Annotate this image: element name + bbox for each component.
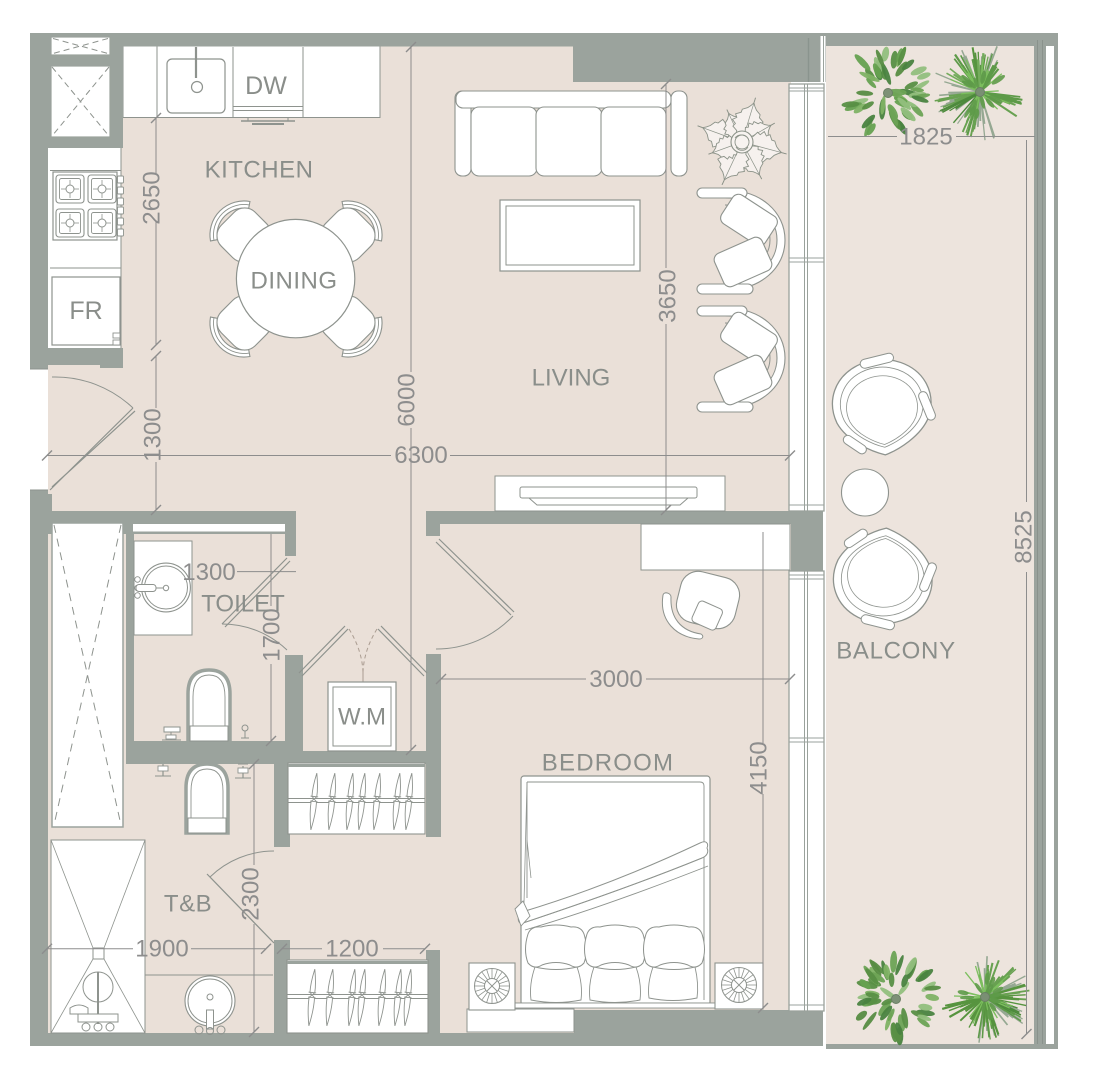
svg-text:2300: 2300: [238, 867, 265, 920]
svg-text:BALCONY: BALCONY: [836, 638, 956, 665]
svg-text:2650: 2650: [139, 171, 166, 224]
svg-text:TOILET: TOILET: [201, 591, 285, 618]
svg-text:W.M: W.M: [338, 704, 386, 731]
svg-text:BEDROOM: BEDROOM: [542, 750, 674, 777]
svg-text:LIVING: LIVING: [532, 365, 611, 392]
svg-text:1300: 1300: [182, 559, 235, 586]
svg-text:1900: 1900: [135, 936, 188, 963]
svg-text:1300: 1300: [140, 408, 167, 461]
svg-text:1200: 1200: [325, 936, 378, 963]
svg-text:4150: 4150: [746, 741, 773, 794]
svg-text:FR: FR: [69, 297, 102, 325]
svg-text:DW: DW: [245, 72, 287, 100]
svg-text:8525: 8525: [1011, 510, 1038, 563]
svg-text:DINING: DINING: [251, 268, 338, 295]
svg-text:6000: 6000: [394, 373, 421, 426]
svg-text:6300: 6300: [394, 442, 447, 469]
svg-text:1825: 1825: [899, 124, 952, 151]
svg-text:T&B: T&B: [164, 891, 212, 918]
svg-text:KITCHEN: KITCHEN: [205, 157, 314, 184]
svg-text:3650: 3650: [655, 269, 682, 322]
svg-text:3000: 3000: [589, 666, 642, 693]
